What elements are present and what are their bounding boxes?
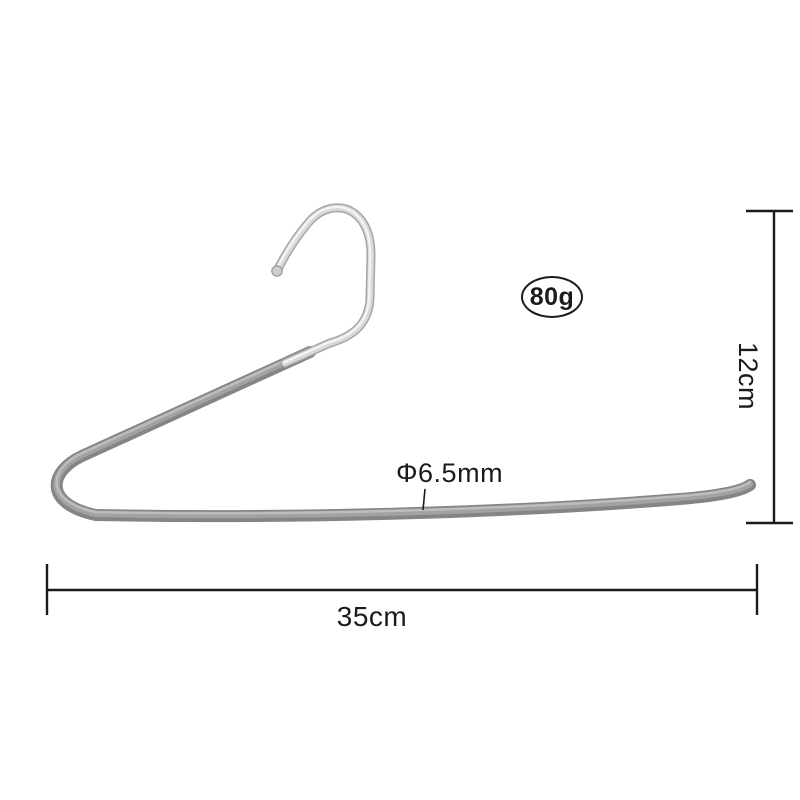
hanger-hook — [272, 207, 371, 363]
hanger-bar-base — [57, 352, 750, 516]
hook-highlight — [277, 207, 370, 362]
height-label: 12cm — [733, 326, 763, 426]
hanger-body — [57, 349, 750, 516]
hook-base — [278, 208, 371, 363]
diameter-label: Φ6.5mm — [396, 458, 503, 489]
dimension-lines — [47, 211, 793, 615]
hanger-bar-mid — [57, 351, 750, 515]
hook-edge — [278, 208, 371, 363]
weight-badge-text: 80g — [530, 283, 575, 312]
width-label: 35cm — [310, 601, 434, 633]
hook-ball-tip — [272, 266, 282, 276]
hanger-illustration — [0, 0, 800, 800]
weight-badge: 80g — [521, 276, 583, 318]
product-dimension-diagram: 80g Φ6.5mm 35cm 12cm — [0, 0, 800, 800]
